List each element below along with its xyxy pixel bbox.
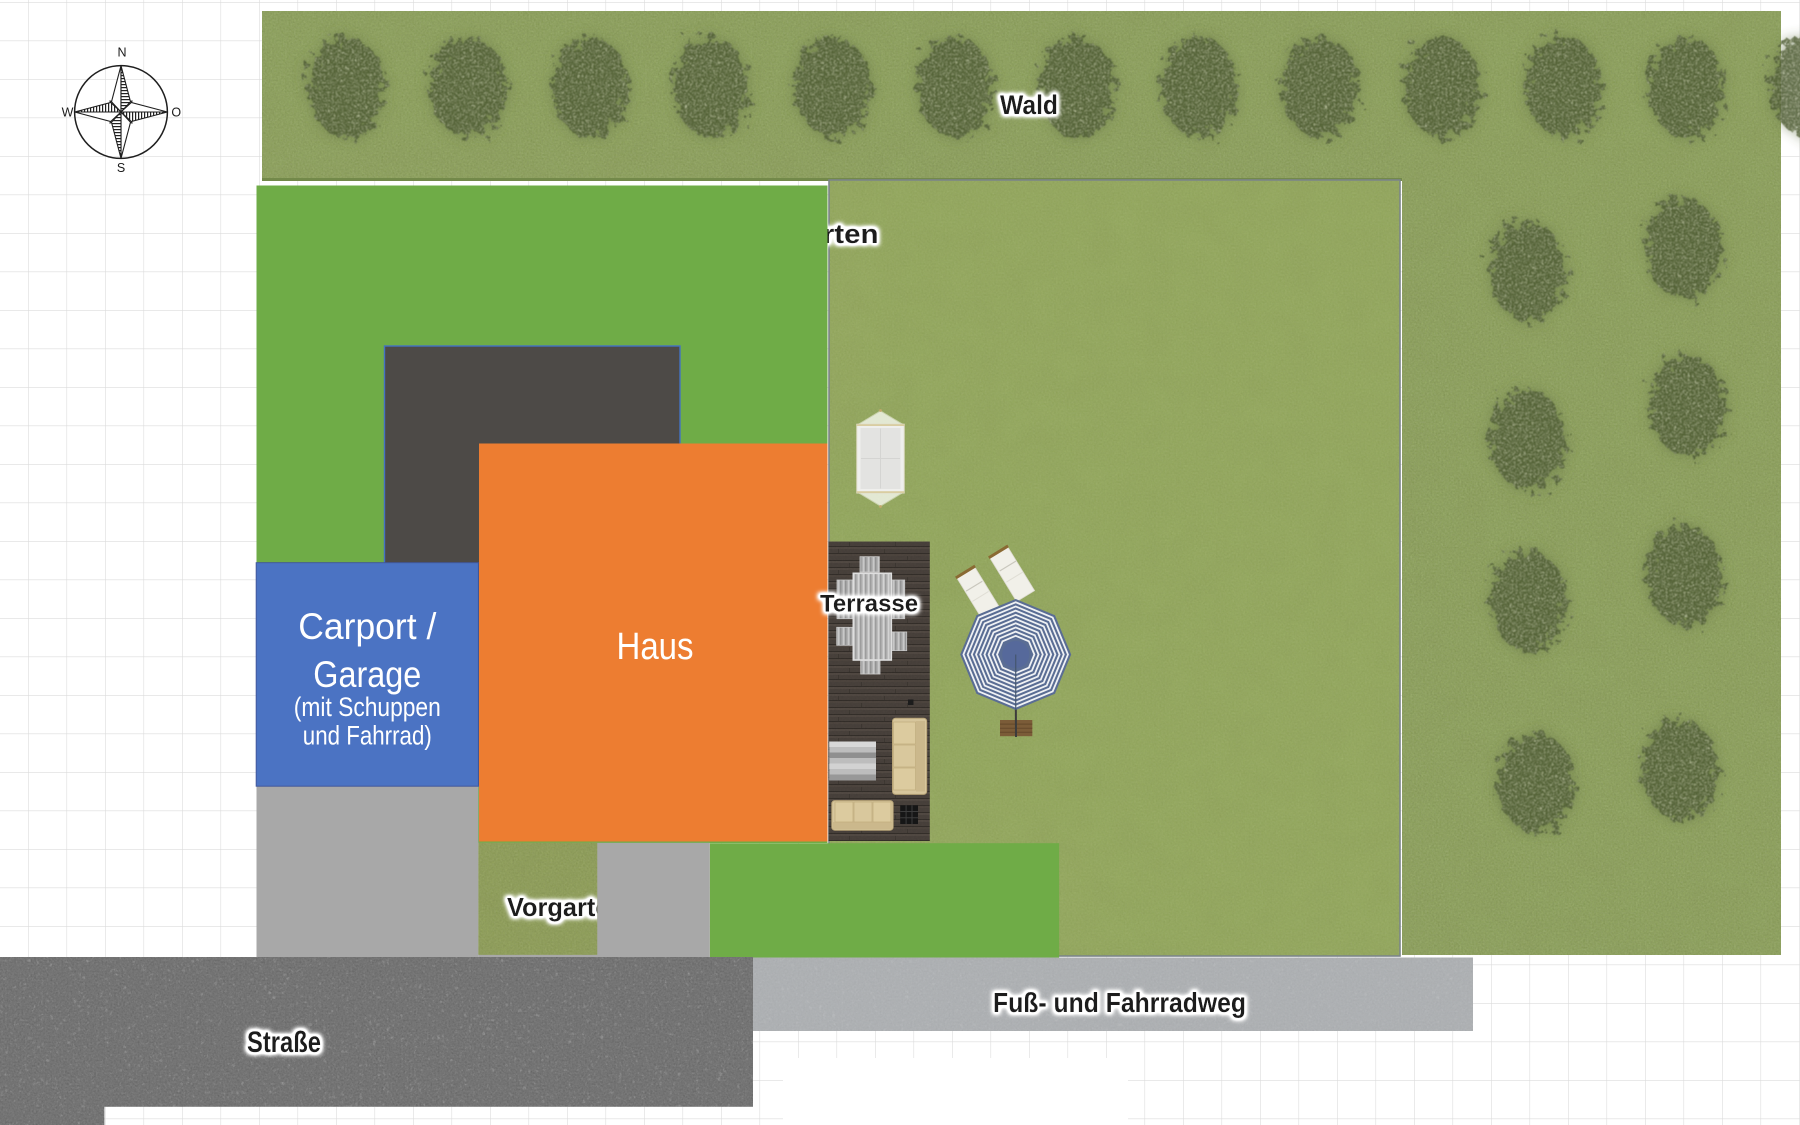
svg-text:Haus: Haus <box>617 626 694 668</box>
svg-text:N: N <box>117 45 126 59</box>
svg-text:Terrasse: Terrasse <box>820 591 918 618</box>
svg-text:O: O <box>171 105 181 119</box>
svg-text:(mit Schuppen: (mit Schuppen <box>294 692 441 722</box>
svg-text:W: W <box>62 105 74 119</box>
svg-text:S: S <box>117 161 125 175</box>
svg-text:Garage: Garage <box>313 654 421 695</box>
svg-text:und Fahrrad): und Fahrrad) <box>303 721 432 751</box>
svg-text:Fuß- und Fahrradweg: Fuß- und Fahrradweg <box>993 987 1246 1018</box>
svg-text:Carport /: Carport / <box>298 606 437 647</box>
svg-text:Wald: Wald <box>1000 90 1058 120</box>
svg-text:Straße: Straße <box>247 1026 321 1059</box>
